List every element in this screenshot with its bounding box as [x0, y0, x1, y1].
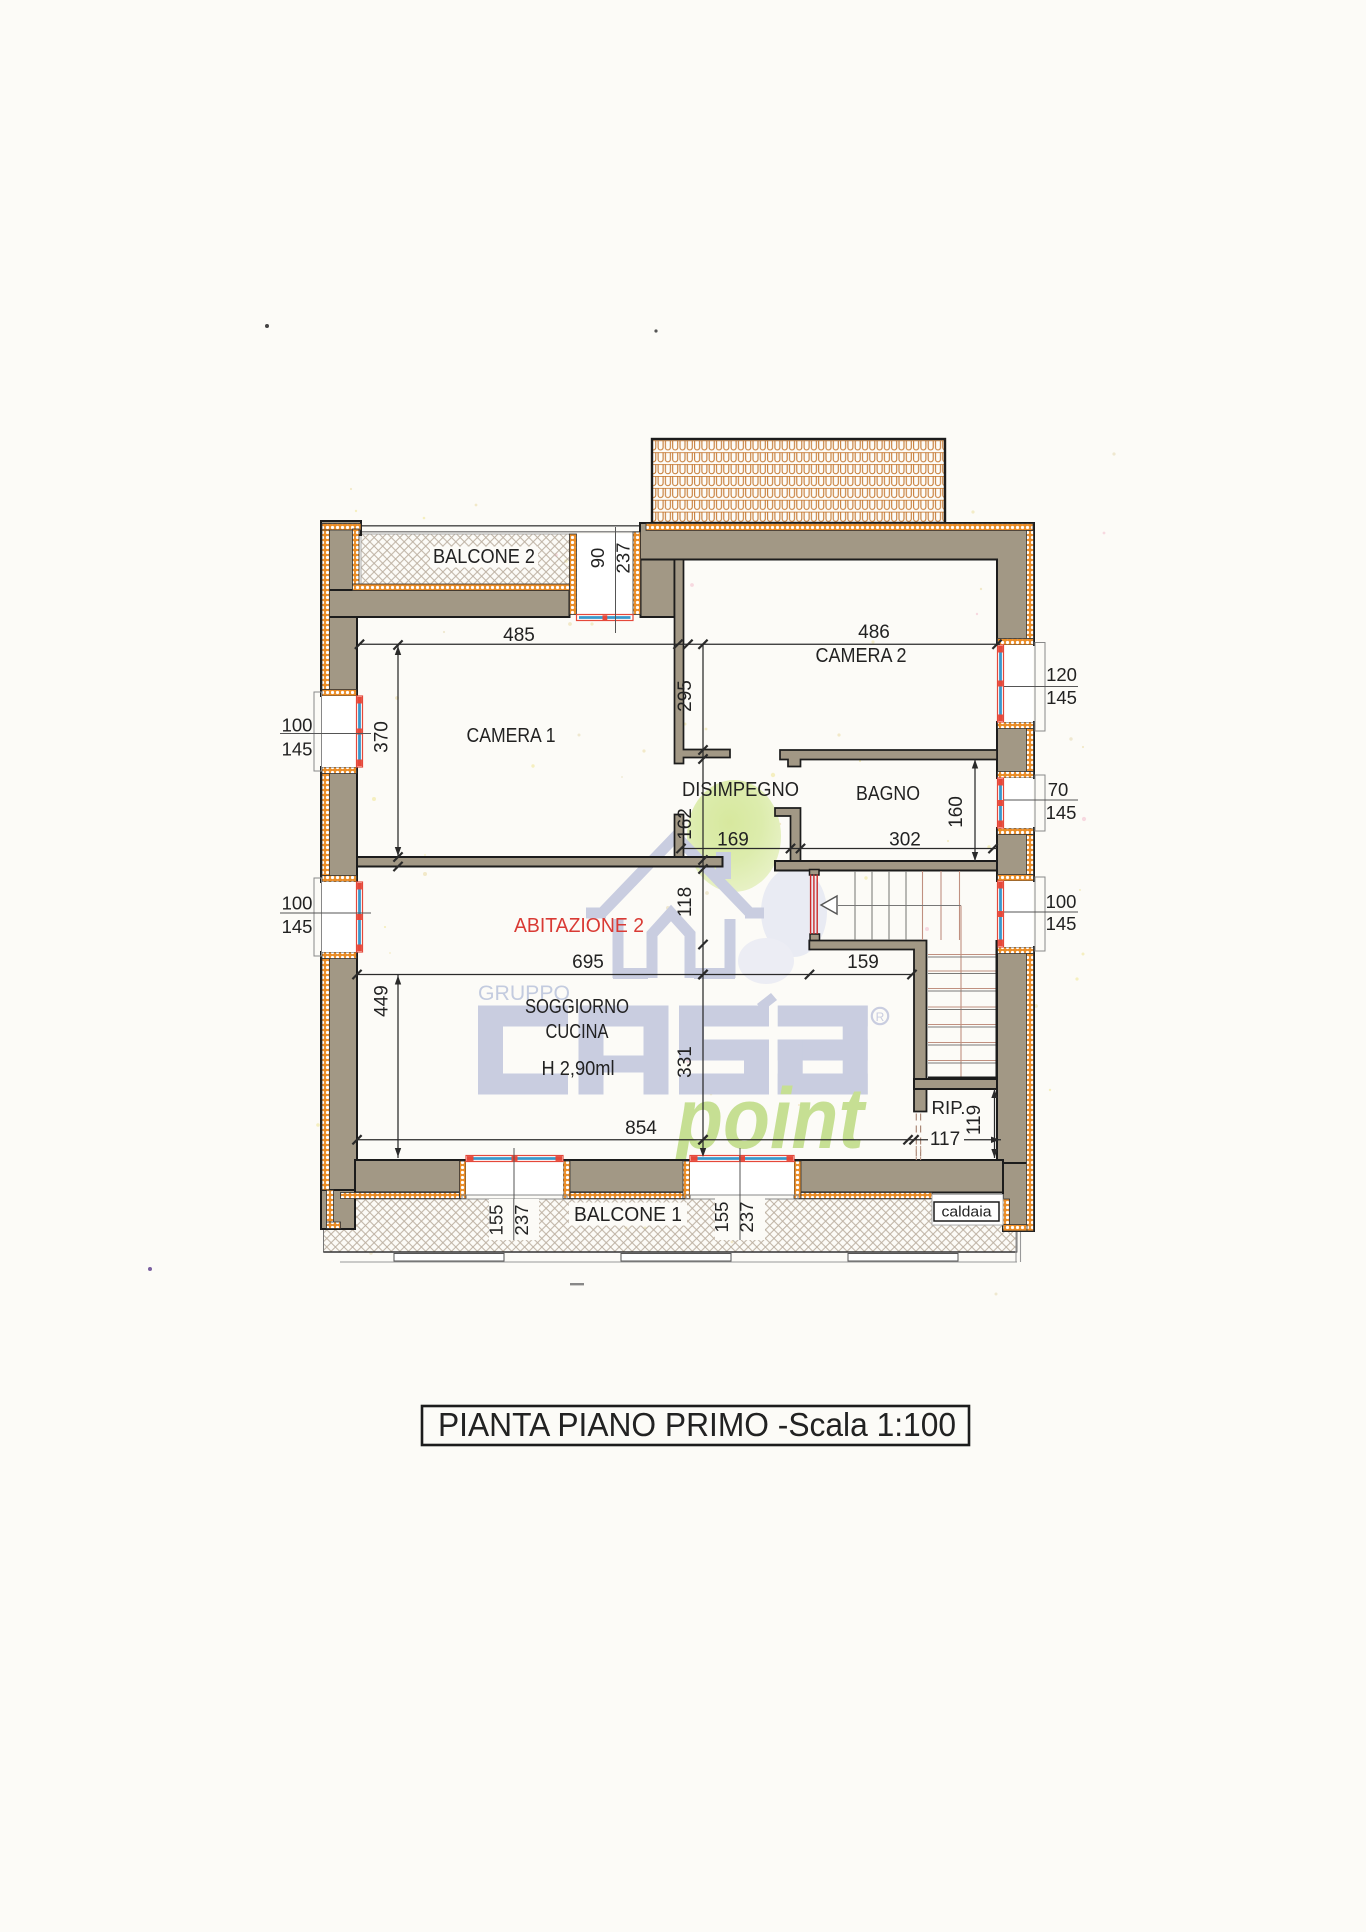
svg-text:145: 145 — [282, 739, 313, 760]
svg-text:BAGNO: BAGNO — [856, 783, 920, 805]
svg-text:117: 117 — [930, 1129, 960, 1150]
svg-text:90: 90 — [587, 548, 608, 569]
svg-text:120: 120 — [1046, 664, 1077, 685]
svg-text:159: 159 — [847, 952, 879, 973]
svg-text:302: 302 — [889, 830, 921, 851]
svg-text:CAMERA 1: CAMERA 1 — [467, 725, 556, 747]
svg-text:370: 370 — [372, 721, 393, 753]
svg-text:486: 486 — [858, 622, 890, 643]
svg-text:R: R — [876, 1010, 885, 1024]
svg-text:237: 237 — [736, 1202, 757, 1233]
svg-text:caldaia: caldaia — [942, 1204, 993, 1221]
svg-text:100: 100 — [282, 893, 313, 914]
svg-text:162: 162 — [675, 808, 696, 840]
svg-text:155: 155 — [486, 1205, 507, 1236]
svg-text:ABITAZIONE 2: ABITAZIONE 2 — [514, 915, 644, 937]
svg-text:100: 100 — [282, 715, 313, 736]
svg-text:BALCONE 1: BALCONE 1 — [574, 1204, 682, 1226]
svg-text:237: 237 — [613, 543, 634, 574]
svg-text:70: 70 — [1048, 779, 1069, 800]
svg-text:100: 100 — [1046, 891, 1077, 912]
svg-text:DISIMPEGNO: DISIMPEGNO — [682, 779, 799, 801]
svg-text:449: 449 — [372, 985, 393, 1017]
svg-text:485: 485 — [503, 625, 535, 646]
svg-text:295: 295 — [675, 680, 696, 712]
svg-text:CUCINA: CUCINA — [546, 1021, 610, 1043]
svg-text:145: 145 — [1046, 913, 1077, 934]
svg-text:237: 237 — [511, 1205, 532, 1236]
svg-text:155: 155 — [711, 1202, 732, 1233]
svg-text:CAMERA 2: CAMERA 2 — [816, 645, 907, 667]
svg-text:160: 160 — [946, 796, 967, 828]
svg-text:RIP.: RIP. — [932, 1098, 966, 1118]
svg-text:854: 854 — [625, 1118, 657, 1139]
svg-text:BALCONE 2: BALCONE 2 — [433, 546, 535, 568]
svg-text:H 2,90ml: H 2,90ml — [542, 1058, 615, 1080]
svg-text:695: 695 — [572, 952, 604, 973]
svg-text:119: 119 — [964, 1105, 985, 1135]
svg-text:331: 331 — [675, 1046, 696, 1078]
svg-text:PIANTA PIANO PRIMO -Scala 1:10: PIANTA PIANO PRIMO -Scala 1:100 — [438, 1406, 956, 1443]
svg-text:145: 145 — [282, 916, 313, 937]
svg-text:118: 118 — [675, 887, 696, 917]
svg-text:145: 145 — [1046, 802, 1077, 823]
svg-text:169: 169 — [717, 830, 749, 851]
svg-text:145: 145 — [1046, 687, 1077, 708]
svg-text:SOGGIORNO: SOGGIORNO — [525, 996, 629, 1018]
